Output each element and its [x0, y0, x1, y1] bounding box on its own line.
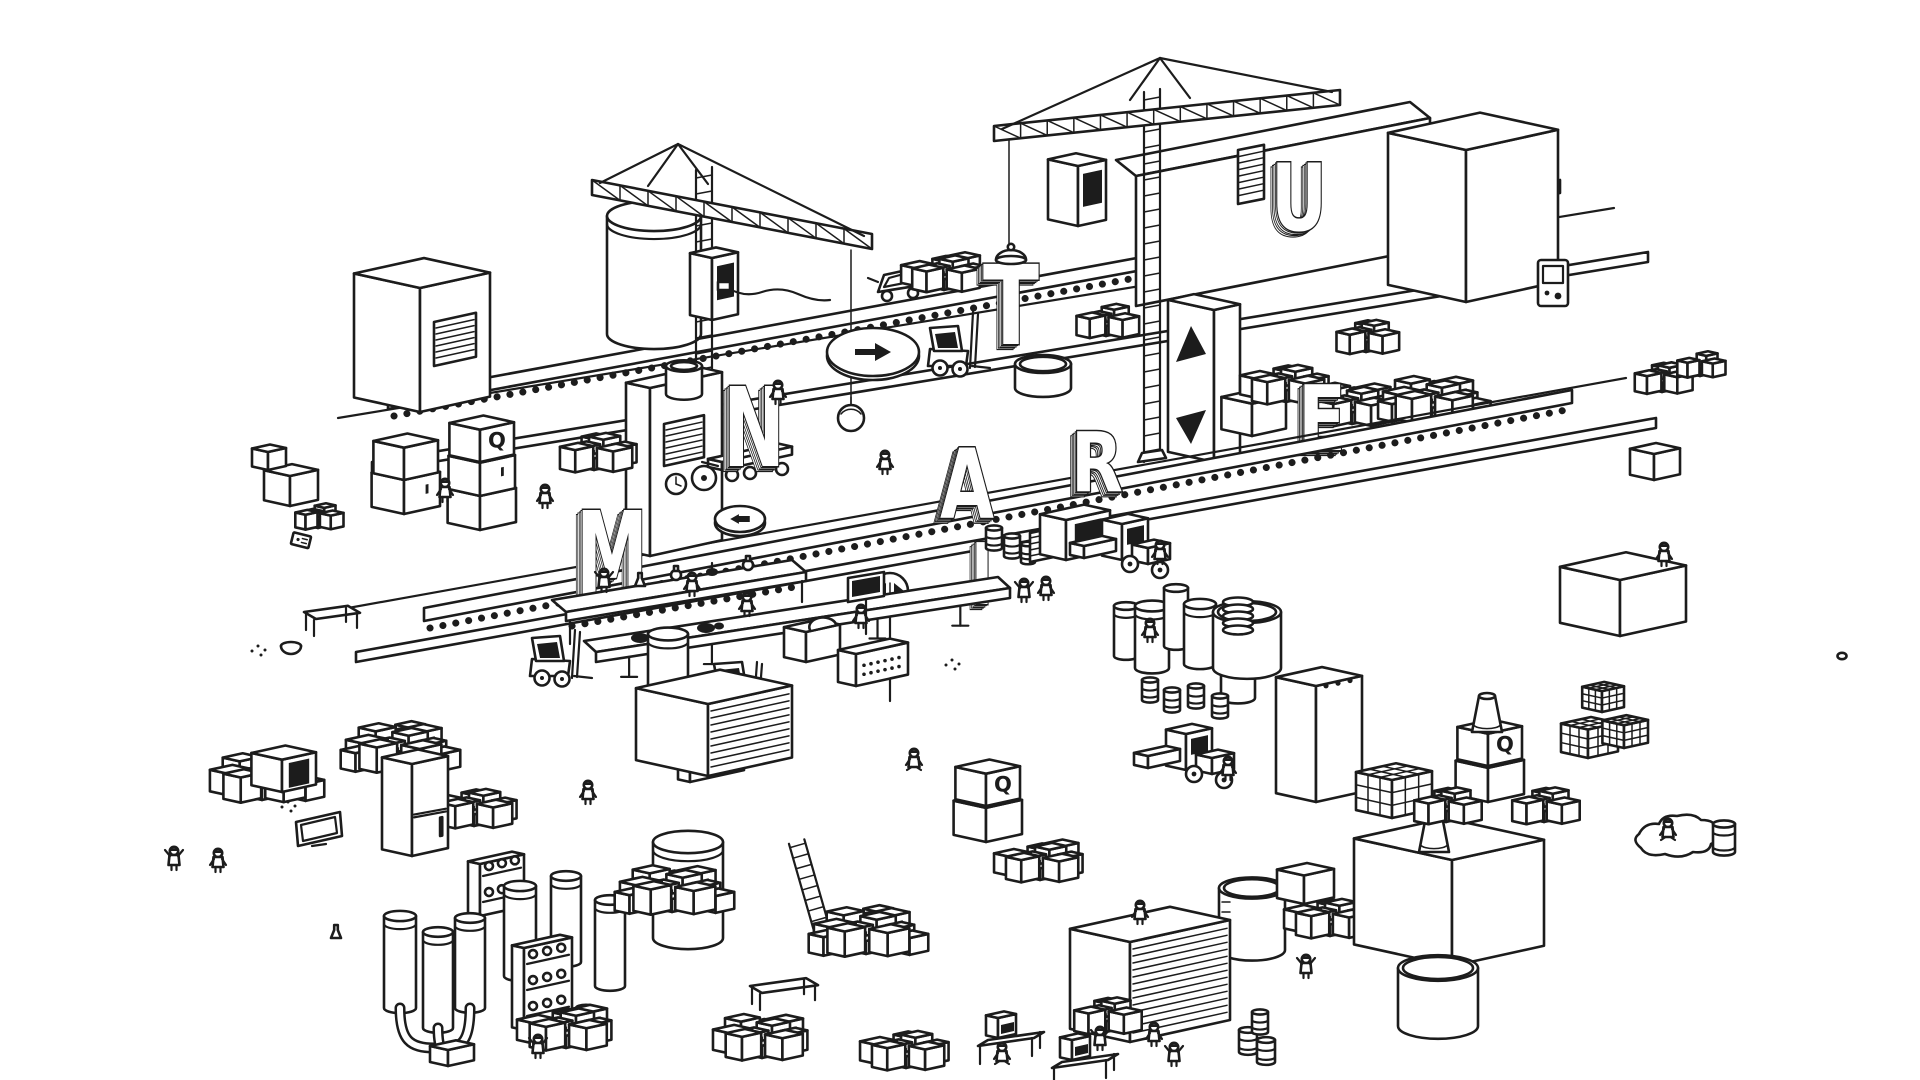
storage-tank-large: [607, 201, 701, 349]
barrel[interactable]: [1713, 820, 1735, 855]
small-table[interactable]: [304, 606, 360, 636]
crate-q-symbol[interactable]: Q: [955, 759, 1020, 806]
bowl[interactable]: [281, 642, 301, 654]
computer-desk[interactable]: [1052, 1033, 1118, 1080]
rotating-arrow-platform[interactable]: [715, 506, 765, 536]
small-cube[interactable]: [1630, 443, 1680, 480]
crate-stack[interactable]: [901, 252, 984, 292]
flask[interactable]: [331, 925, 341, 938]
svg-text:U: U: [1271, 144, 1327, 252]
rotating-arrow-platform[interactable]: [827, 328, 919, 380]
crate-q-symbol[interactable]: Q: [449, 415, 514, 462]
svg-text:E: E: [1298, 367, 1346, 472]
freight-elevator[interactable]: [1168, 294, 1240, 462]
svg-text:Q: Q: [994, 771, 1012, 796]
spill-puddle: [1635, 815, 1719, 857]
crate-stack[interactable]: [713, 1014, 807, 1060]
crate[interactable]: [373, 433, 438, 480]
crate-stack[interactable]: [1336, 320, 1399, 354]
crate-stack[interactable]: [994, 840, 1083, 883]
tiny-person[interactable]: [210, 849, 226, 872]
stamping-machine[interactable]: [784, 618, 840, 662]
ladder[interactable]: [789, 839, 830, 932]
barrel[interactable]: [1257, 1037, 1275, 1065]
scene-canvas[interactable]: UUUUUEEEEETTTTTNNNNNMMMMMQAAAAAIIIIIRRRR…: [0, 0, 1920, 1080]
funnel: [1472, 693, 1502, 732]
forklift[interactable]: [530, 630, 592, 687]
tiny-person[interactable]: [580, 781, 596, 804]
svg-text:A: A: [940, 429, 994, 541]
dust: [251, 645, 267, 657]
svg-text:R: R: [1071, 416, 1123, 511]
tiny-person[interactable]: [994, 1043, 1010, 1064]
crate[interactable]: [1277, 863, 1334, 904]
round-basin[interactable]: [1398, 955, 1478, 1039]
crate-stack[interactable]: [860, 1031, 949, 1070]
piped-tank-trio: [384, 911, 485, 1066]
barrel[interactable]: [1188, 683, 1204, 708]
garage-shed: [636, 670, 792, 776]
big-building-top-right: [1388, 113, 1558, 302]
crate-stack[interactable]: [615, 865, 735, 914]
grid-cube[interactable]: [1602, 715, 1648, 748]
flat-building-bottom-right: [1354, 818, 1544, 966]
small-cube[interactable]: [252, 445, 286, 470]
letter-U[interactable]: UUUUU: [1265, 144, 1327, 257]
crane-hook-ball[interactable]: [838, 397, 864, 431]
crate-open-dark[interactable]: [251, 745, 316, 792]
barrel[interactable]: [1252, 1009, 1268, 1034]
building-left-vented: [354, 258, 490, 412]
process-tank[interactable]: [1184, 599, 1216, 669]
barrel[interactable]: [1142, 677, 1158, 702]
control-console[interactable]: [838, 639, 908, 686]
barrel[interactable]: [1164, 687, 1180, 712]
grid-cube[interactable]: [1582, 682, 1624, 712]
tv-screen[interactable]: [296, 812, 342, 846]
game-scene[interactable]: UUUUUEEEEETTTTTNNNNNMMMMMQAAAAAIIIIIRRRR…: [0, 0, 1920, 1080]
svg-text:Q: Q: [488, 427, 506, 452]
crate-stack[interactable]: [1076, 304, 1139, 338]
tiny-person[interactable]: [1165, 1043, 1183, 1066]
barrel[interactable]: [986, 525, 1002, 550]
work-table[interactable]: [750, 978, 818, 1010]
dust: [945, 659, 961, 671]
tall-cabinet: [1276, 667, 1362, 802]
wall-vent-grille: [1238, 145, 1264, 204]
letter-R[interactable]: RRRRR: [1065, 416, 1123, 516]
tiny-person[interactable]: [877, 451, 893, 474]
dropped-ticket: [291, 532, 311, 548]
mini-crate-column[interactable]: [295, 503, 343, 529]
barrel[interactable]: [1004, 533, 1020, 558]
round-vat[interactable]: [1015, 355, 1071, 397]
svg-text:Q: Q: [1496, 731, 1514, 756]
tiny-person[interactable]: [1038, 577, 1054, 600]
tiny-person[interactable]: [906, 749, 922, 770]
barrel[interactable]: [1212, 693, 1228, 718]
tiny-person[interactable]: [537, 485, 553, 508]
tiny-person[interactable]: [165, 847, 183, 870]
double-door-cabinet[interactable]: [382, 749, 448, 856]
tiny-person[interactable]: [1297, 955, 1315, 978]
handheld-device[interactable]: [1538, 260, 1568, 306]
mixing-vat-with-coil[interactable]: [1213, 598, 1281, 704]
tiny-person[interactable]: [1015, 579, 1033, 602]
truck[interactable]: [1134, 724, 1234, 788]
pebble: [1838, 653, 1847, 659]
crate-stack[interactable]: [1677, 351, 1725, 377]
crate-stack[interactable]: [809, 905, 929, 956]
computer-desk[interactable]: [978, 1011, 1044, 1064]
